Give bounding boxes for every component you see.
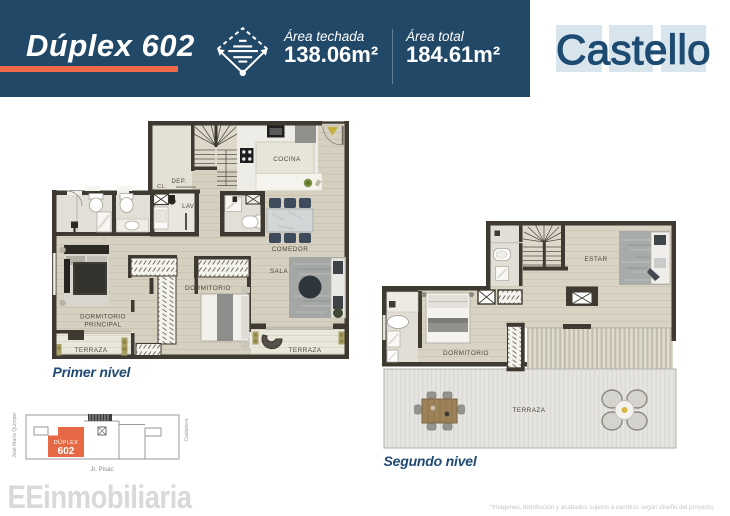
svg-text:COMEDOR: COMEDOR [272,246,309,253]
svg-text:Jr. Pisac: Jr. Pisac [90,466,113,473]
svg-text:DORMITORIO: DORMITORIO [443,350,489,357]
svg-text:TERRAZA: TERRAZA [513,407,546,414]
svg-text:DORMITORIO: DORMITORIO [80,314,126,321]
svg-text:SALA: SALA [270,268,288,275]
svg-text:602: 602 [58,446,75,457]
svg-text:DORMITORIO: DORMITORIO [185,285,231,292]
svg-text:TERRAZA: TERRAZA [75,347,108,354]
svg-text:TERRAZA: TERRAZA [289,347,322,354]
svg-text:ESTAR: ESTAR [584,256,607,263]
svg-text:José María Químper: José María Químper [12,412,18,458]
svg-text:Costanera: Costanera [184,418,190,441]
svg-text:DÚPLEX: DÚPLEX [54,439,79,446]
svg-text:CL.: CL. [157,184,167,190]
svg-text:PRINCIPAL: PRINCIPAL [84,322,121,329]
svg-text:COCINA: COCINA [273,156,301,163]
svg-text:DEP.: DEP. [171,179,186,185]
svg-text:LAV.: LAV. [182,204,196,210]
